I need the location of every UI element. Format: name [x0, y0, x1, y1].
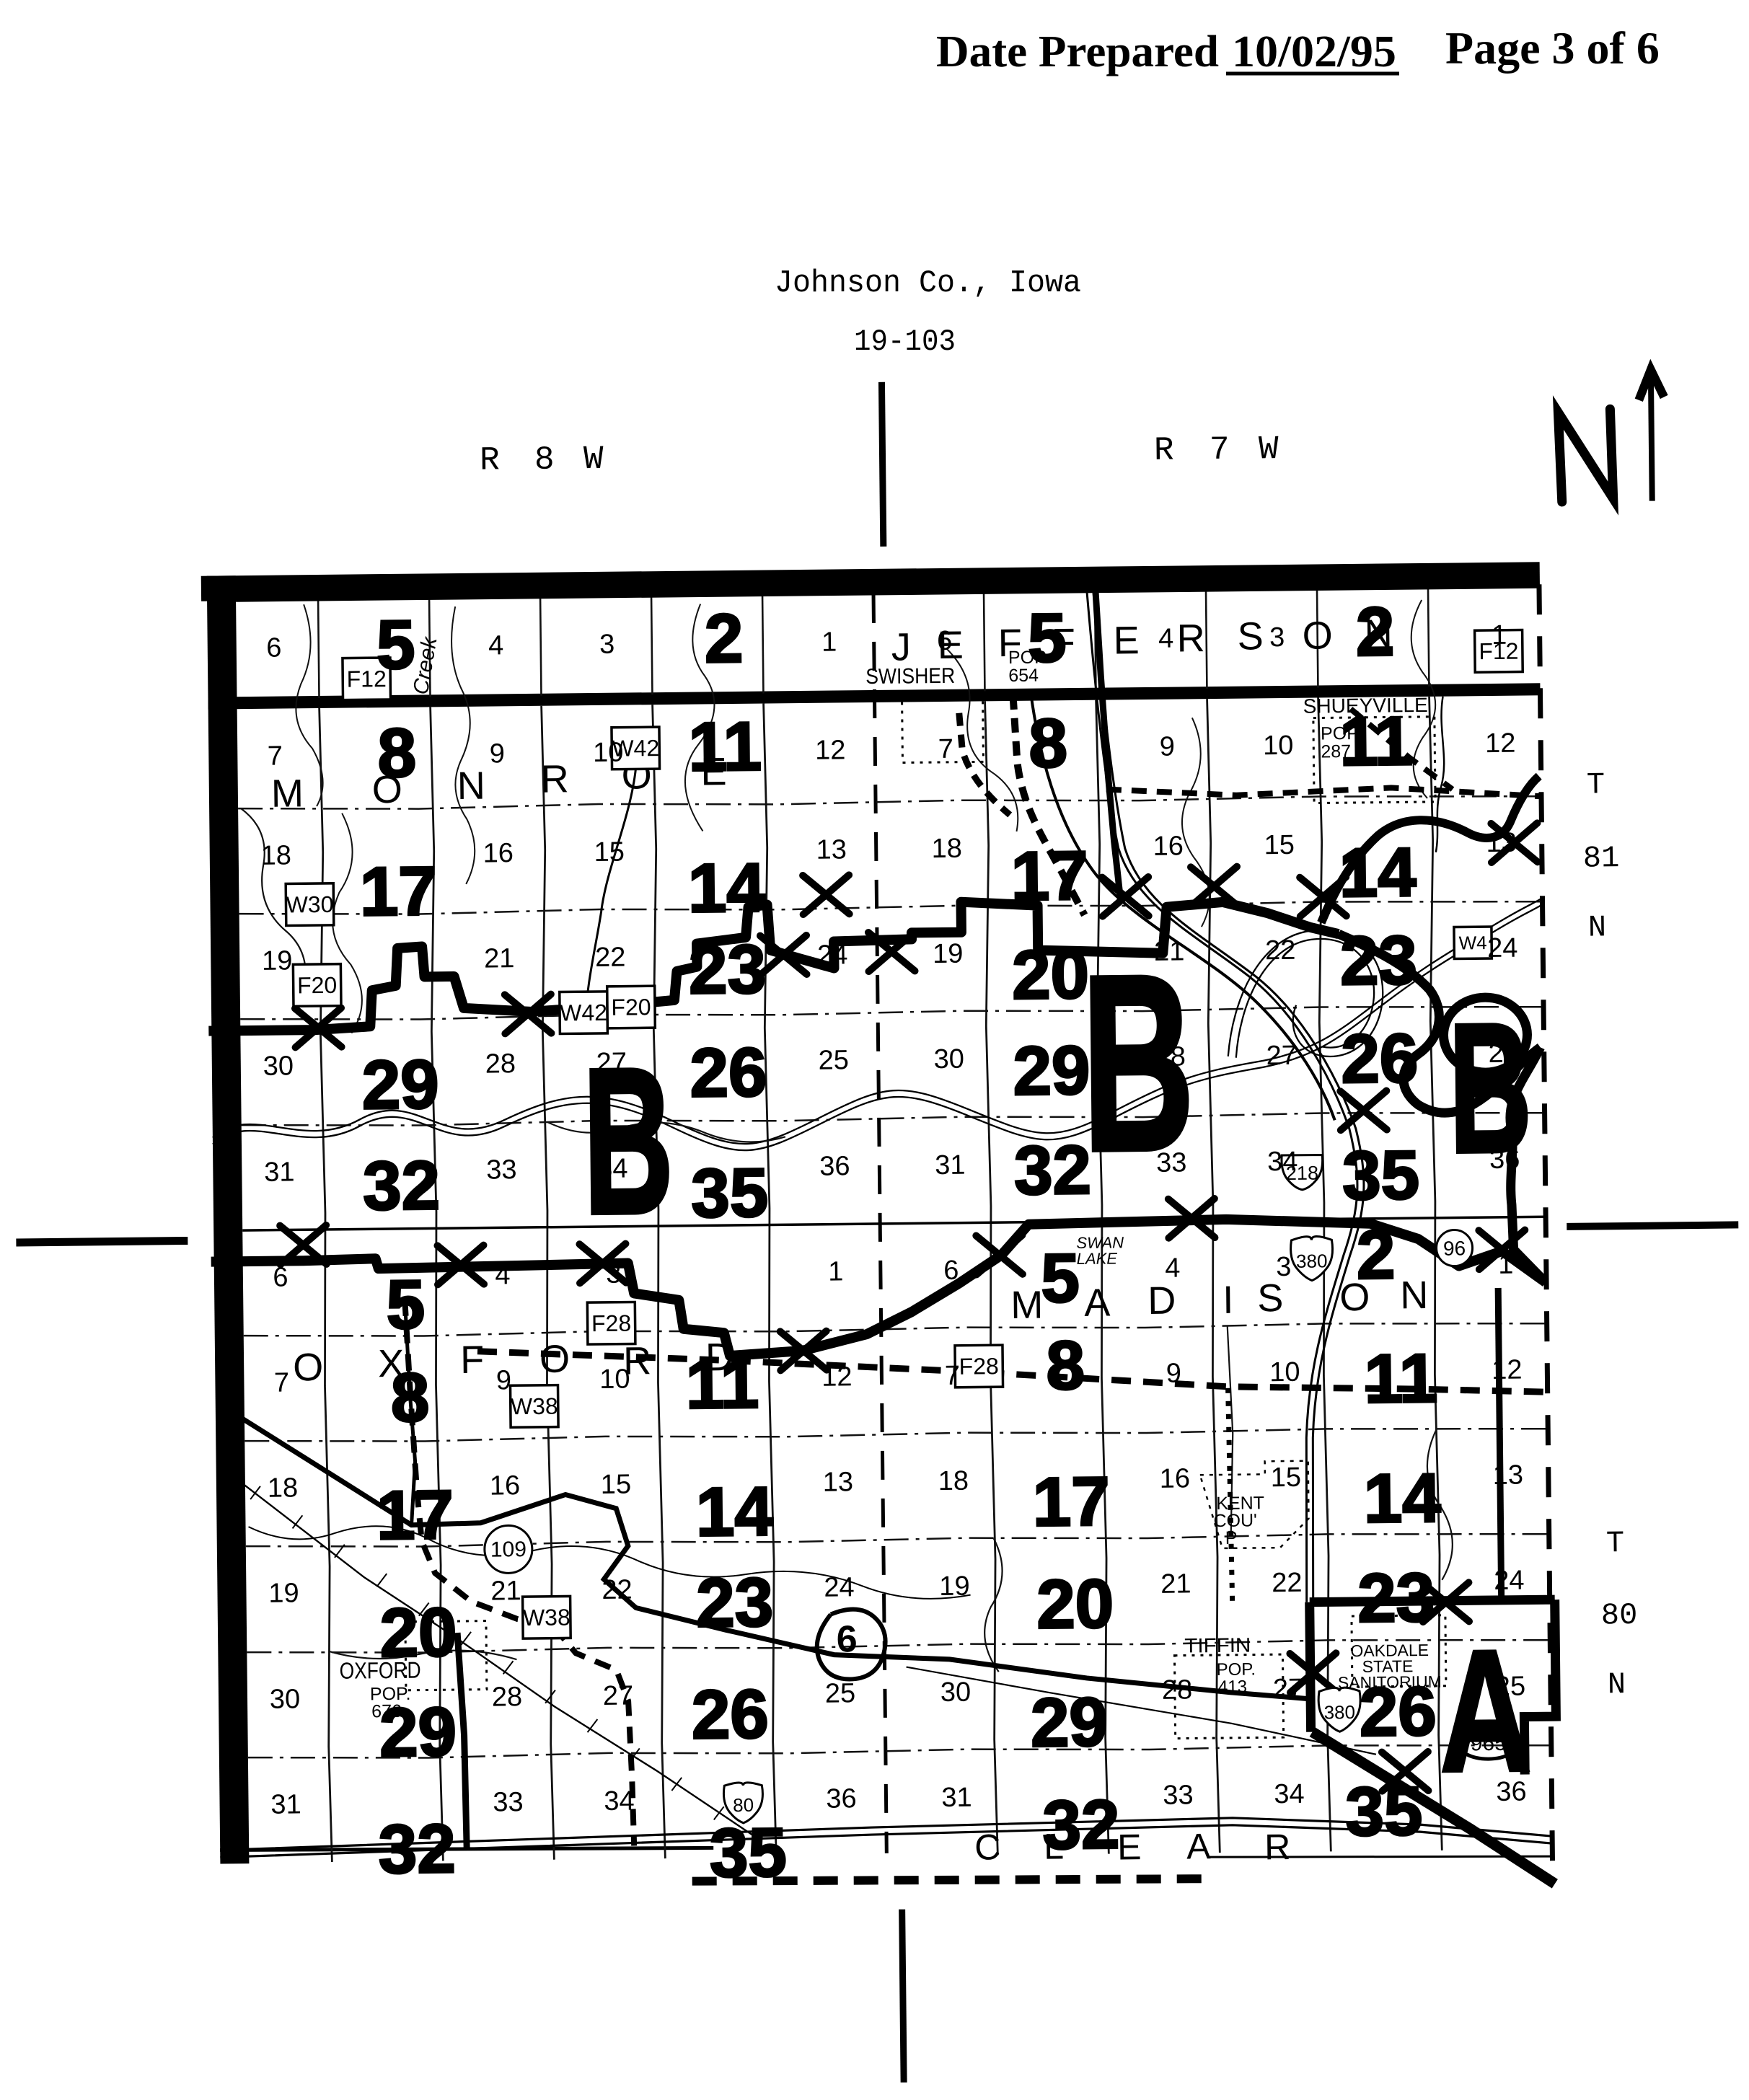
svg-text:9: 9	[1159, 732, 1175, 762]
svg-text:F20: F20	[611, 994, 651, 1020]
svg-text:15: 15	[601, 1470, 632, 1500]
svg-text:21: 21	[484, 943, 515, 974]
svg-text:27: 27	[603, 1681, 634, 1711]
svg-text:25: 25	[818, 1045, 849, 1075]
svg-text:35: 35	[709, 1814, 787, 1892]
svg-text:17: 17	[1010, 837, 1088, 915]
svg-text:12: 12	[1492, 1355, 1523, 1385]
svg-text:A: A	[1186, 1826, 1212, 1866]
svg-text:18: 18	[260, 840, 291, 870]
svg-text:7: 7	[268, 741, 283, 772]
svg-text:26: 26	[690, 1034, 767, 1112]
svg-text:11: 11	[688, 708, 762, 786]
svg-text:14: 14	[1339, 834, 1417, 912]
svg-text:96: 96	[1443, 1237, 1466, 1259]
svg-text:14: 14	[1363, 1460, 1441, 1537]
svg-text:29: 29	[1013, 1032, 1091, 1110]
svg-text:7: 7	[945, 1361, 961, 1391]
svg-text:10: 10	[593, 738, 624, 768]
svg-text:23: 23	[1339, 922, 1417, 1000]
svg-text:12: 12	[1485, 728, 1516, 759]
svg-text:24: 24	[1494, 1566, 1525, 1596]
svg-text:6: 6	[836, 1618, 858, 1660]
svg-text:28: 28	[492, 1682, 523, 1712]
svg-text:8: 8	[377, 715, 417, 793]
svg-text:17: 17	[359, 852, 437, 930]
svg-text:81: 81	[1583, 841, 1620, 876]
svg-text:80: 80	[733, 1794, 754, 1816]
svg-text:35: 35	[1345, 1773, 1423, 1850]
svg-text:28: 28	[485, 1049, 516, 1079]
svg-text:I: I	[1222, 1279, 1234, 1322]
svg-text:14: 14	[687, 850, 765, 927]
svg-text:W4: W4	[1458, 932, 1486, 953]
svg-text:18: 18	[931, 834, 962, 864]
svg-text:17: 17	[1032, 1463, 1110, 1541]
svg-text:34: 34	[1267, 1147, 1298, 1177]
svg-text:Date Prepared: Date Prepared	[936, 27, 1219, 76]
svg-text:33: 33	[493, 1787, 524, 1817]
svg-text:30: 30	[270, 1684, 301, 1714]
svg-text:W38: W38	[511, 1393, 558, 1420]
svg-text:F20: F20	[297, 972, 338, 999]
svg-text:12: 12	[821, 1362, 853, 1392]
svg-text:8: 8	[534, 441, 555, 479]
svg-text:13: 13	[823, 1467, 854, 1497]
svg-text:O: O	[1302, 614, 1333, 657]
svg-text:D: D	[1147, 1279, 1176, 1323]
svg-text:J: J	[891, 625, 911, 669]
svg-text:1: 1	[828, 1256, 844, 1287]
svg-text:A: A	[1439, 1613, 1532, 1808]
svg-text:20: 20	[1012, 936, 1090, 1014]
svg-text:F: F	[460, 1338, 485, 1382]
svg-text:26: 26	[1341, 1020, 1419, 1098]
svg-text:30: 30	[933, 1044, 964, 1075]
svg-text:E: E	[1117, 1827, 1142, 1867]
svg-text:3: 3	[606, 1259, 622, 1289]
svg-text:T: T	[1606, 1526, 1625, 1561]
svg-text:9: 9	[1166, 1359, 1182, 1389]
svg-text:109: 109	[490, 1537, 527, 1562]
svg-text:M: M	[271, 772, 304, 815]
svg-text:W42: W42	[560, 1000, 607, 1026]
svg-text:10: 10	[599, 1364, 630, 1395]
svg-text:80: 80	[1601, 1598, 1638, 1633]
svg-text:10: 10	[1269, 1357, 1300, 1387]
svg-text:R: R	[540, 757, 569, 800]
svg-text:4: 4	[1158, 624, 1174, 654]
svg-text:29: 29	[361, 1046, 439, 1124]
svg-text:18: 18	[938, 1466, 969, 1496]
svg-text:12: 12	[815, 735, 846, 765]
svg-text:7: 7	[938, 734, 954, 764]
svg-text:29: 29	[379, 1693, 457, 1771]
svg-text:3: 3	[1276, 1252, 1292, 1282]
svg-text:R: R	[1154, 432, 1174, 469]
svg-text:B: B	[582, 1025, 674, 1258]
svg-text:23: 23	[689, 931, 767, 1009]
svg-text:22: 22	[595, 943, 626, 973]
svg-text:22: 22	[1265, 935, 1296, 966]
svg-text:34: 34	[1274, 1779, 1305, 1809]
svg-text:15: 15	[1271, 1462, 1302, 1493]
svg-text:16: 16	[490, 1470, 521, 1501]
svg-text:23: 23	[696, 1563, 774, 1641]
svg-text:6: 6	[266, 633, 282, 663]
svg-text:24: 24	[824, 1572, 855, 1602]
svg-text:8: 8	[390, 1359, 430, 1437]
svg-text:4: 4	[488, 630, 504, 661]
svg-text:N: N	[1608, 1667, 1626, 1702]
svg-text:16: 16	[1160, 1463, 1191, 1494]
svg-text:P: P	[1225, 1528, 1238, 1548]
svg-text:15: 15	[594, 837, 625, 868]
svg-text:28: 28	[1162, 1675, 1193, 1705]
svg-text:5: 5	[376, 606, 415, 684]
svg-text:20: 20	[1036, 1566, 1114, 1644]
svg-text:32: 32	[378, 1810, 456, 1888]
svg-text:20: 20	[379, 1594, 457, 1672]
svg-text:6: 6	[943, 1256, 959, 1286]
svg-text:32: 32	[1042, 1786, 1120, 1863]
svg-text:26: 26	[1359, 1673, 1437, 1751]
svg-text:33: 33	[486, 1155, 517, 1185]
svg-text:5: 5	[386, 1266, 426, 1344]
svg-text:13: 13	[1493, 1460, 1524, 1491]
svg-text:2: 2	[704, 600, 744, 678]
svg-text:F28: F28	[591, 1310, 632, 1337]
svg-text:C: C	[974, 1827, 1001, 1867]
svg-text:24: 24	[817, 940, 848, 970]
svg-text:19: 19	[933, 939, 964, 969]
svg-text:19-103: 19-103	[854, 325, 956, 359]
svg-text:SWISHER: SWISHER	[865, 664, 955, 689]
svg-text:3: 3	[599, 630, 615, 660]
svg-text:6: 6	[937, 626, 953, 656]
svg-text:W38: W38	[523, 1604, 570, 1631]
svg-text:O: O	[539, 1337, 570, 1380]
svg-text:10: 10	[1263, 731, 1294, 761]
svg-text:21: 21	[490, 1576, 521, 1606]
svg-text:11: 11	[1339, 702, 1414, 780]
svg-text:8: 8	[1028, 705, 1068, 782]
svg-text:30: 30	[940, 1677, 972, 1708]
svg-text:B: B	[1080, 923, 1196, 1204]
svg-text:W: W	[1259, 431, 1279, 468]
svg-text:W: W	[583, 441, 604, 478]
svg-text:5: 5	[1041, 1240, 1080, 1318]
svg-text:27: 27	[1266, 1041, 1297, 1071]
svg-text:35: 35	[691, 1155, 769, 1232]
svg-text:23: 23	[1357, 1559, 1435, 1637]
svg-text:1: 1	[821, 627, 837, 657]
svg-text:9: 9	[496, 1365, 512, 1395]
svg-text:LAKE: LAKE	[1077, 1249, 1118, 1268]
svg-text:16: 16	[483, 838, 514, 868]
svg-text:380: 380	[1296, 1250, 1328, 1271]
svg-text:1: 1	[1498, 1250, 1514, 1280]
svg-text:35: 35	[1342, 1137, 1420, 1214]
svg-text:S: S	[1257, 1276, 1284, 1320]
svg-text:413: 413	[1218, 1677, 1247, 1697]
svg-text:A: A	[1084, 1281, 1111, 1325]
svg-text:R: R	[480, 441, 500, 479]
svg-text:25: 25	[825, 1678, 856, 1708]
svg-text:O: O	[293, 1346, 324, 1389]
svg-text:21: 21	[1160, 1569, 1191, 1599]
svg-text:17: 17	[376, 1476, 454, 1554]
svg-text:26: 26	[691, 1676, 769, 1754]
svg-text:7: 7	[1210, 431, 1230, 469]
svg-text:4: 4	[1165, 1253, 1181, 1284]
svg-text:32: 32	[1013, 1131, 1091, 1209]
svg-text:36: 36	[826, 1783, 857, 1814]
svg-text:7: 7	[274, 1367, 290, 1398]
svg-text:22: 22	[602, 1575, 633, 1605]
svg-text:R: R	[1264, 1827, 1291, 1867]
svg-text:S: S	[1237, 614, 1264, 658]
svg-text:31: 31	[935, 1150, 966, 1181]
svg-text:1: 1	[1492, 620, 1507, 650]
svg-text:M: M	[1010, 1284, 1044, 1327]
svg-text:30: 30	[263, 1051, 294, 1081]
svg-text:TIFFIN: TIFFIN	[1184, 1634, 1251, 1657]
svg-text:31: 31	[264, 1157, 295, 1187]
svg-text:10/02/95: 10/02/95	[1232, 27, 1396, 76]
svg-text:32: 32	[363, 1147, 441, 1225]
svg-text:6: 6	[273, 1262, 288, 1292]
svg-text:34: 34	[604, 1786, 635, 1817]
svg-text:2: 2	[1355, 593, 1395, 671]
svg-text:380: 380	[1323, 1701, 1355, 1723]
svg-text:2: 2	[1356, 1216, 1396, 1294]
svg-text:14: 14	[695, 1473, 773, 1550]
svg-text:15: 15	[1264, 830, 1295, 860]
svg-text:19: 19	[939, 1571, 970, 1602]
svg-text:N: N	[1400, 1274, 1429, 1317]
svg-text:19: 19	[262, 945, 293, 976]
svg-text:13: 13	[1486, 828, 1517, 858]
svg-text:N: N	[457, 764, 485, 808]
svg-text:5: 5	[1027, 599, 1067, 677]
svg-text:19: 19	[268, 1578, 299, 1608]
svg-text:11: 11	[1364, 1340, 1438, 1418]
svg-text:33: 33	[1163, 1780, 1194, 1810]
svg-text:3: 3	[1269, 622, 1285, 653]
svg-text:24: 24	[1487, 933, 1518, 963]
svg-text:W30: W30	[286, 891, 333, 918]
svg-text:29: 29	[1030, 1684, 1108, 1762]
svg-text:R: R	[1176, 617, 1205, 660]
svg-text:22: 22	[1272, 1568, 1303, 1598]
svg-text:27: 27	[1273, 1674, 1304, 1704]
svg-text:18: 18	[268, 1473, 299, 1503]
svg-text:36: 36	[819, 1151, 850, 1181]
svg-text:Johnson Co., Iowa: Johnson Co., Iowa	[775, 265, 1081, 301]
svg-text:T: T	[1587, 767, 1605, 802]
svg-text:16: 16	[1153, 831, 1184, 861]
svg-text:11: 11	[685, 1346, 759, 1424]
svg-text:9: 9	[490, 738, 506, 769]
svg-text:31: 31	[941, 1783, 972, 1813]
svg-text:F28: F28	[959, 1353, 999, 1380]
svg-text:B: B	[1448, 985, 1533, 1192]
svg-text:31: 31	[270, 1789, 301, 1819]
svg-text:4: 4	[495, 1260, 511, 1290]
svg-text:N: N	[1588, 910, 1607, 945]
svg-text:E: E	[1113, 619, 1140, 662]
svg-text:13: 13	[816, 834, 847, 865]
svg-text:8: 8	[1046, 1327, 1085, 1405]
svg-text:Page 3 of 6: Page 3 of 6	[1445, 22, 1660, 74]
